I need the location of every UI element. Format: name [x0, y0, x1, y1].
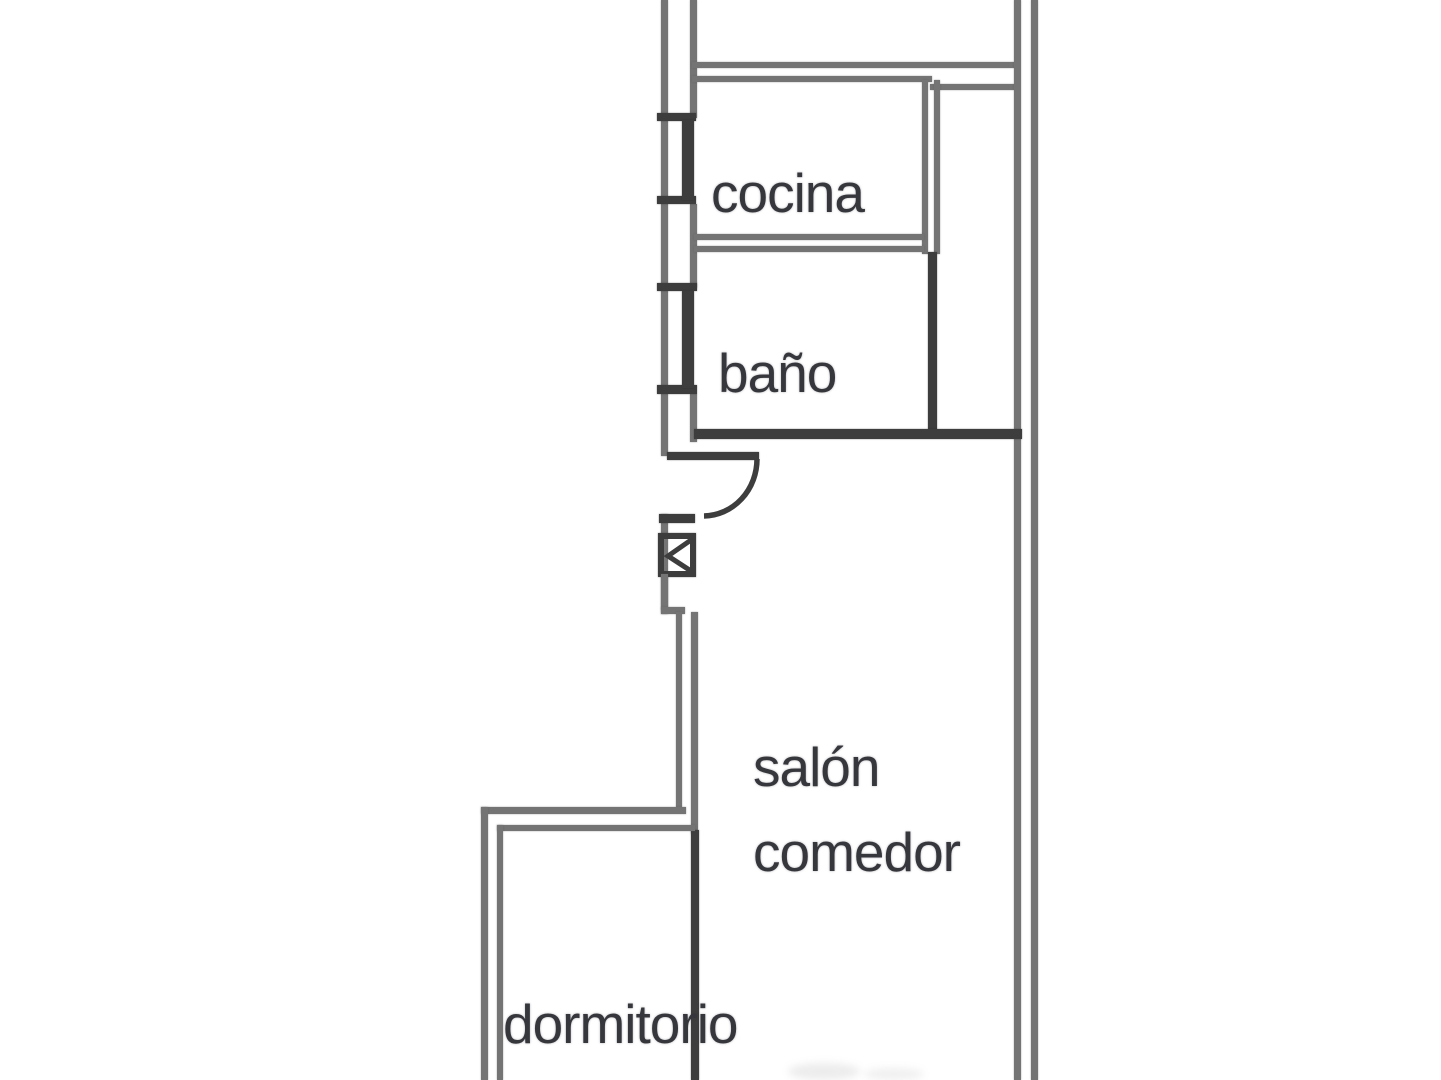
room-label-salon: salón	[753, 740, 879, 795]
wall-right-outer	[1031, 0, 1038, 1080]
wall-strip-top-line	[930, 84, 1016, 90]
shaft-box-icon	[658, 533, 696, 577]
wall-bano-right	[928, 252, 937, 434]
room-label-cocina: cocina	[711, 166, 864, 221]
room-label-dormitorio: dormitorio	[503, 997, 738, 1052]
wall-left-inner-top	[690, 0, 697, 118]
wall-dorm-top-inner	[497, 825, 695, 831]
wall-cocina-right-line2	[934, 80, 940, 254]
window-bano-icon-pane	[682, 291, 694, 388]
wall-dorm-top-outer	[481, 807, 686, 814]
wall-hall-left	[676, 612, 682, 809]
floor-plan: cocina baño salón comedor dormitorio	[0, 0, 1441, 1080]
wall-top-outer-line	[692, 62, 1018, 68]
wall-below-shaft	[661, 574, 668, 610]
wall-cocina-bano-line2	[694, 246, 924, 252]
window-bano-icon-top	[657, 283, 697, 291]
door-leaf	[667, 452, 759, 460]
wall-dorm-left-outer	[481, 807, 488, 1080]
wall-top-inner-line	[692, 76, 932, 82]
window-cocina-icon-pane	[682, 120, 694, 200]
bottom-edge-smudge	[864, 1068, 924, 1080]
room-label-comedor: comedor	[753, 825, 960, 880]
wall-salon-west-upper	[691, 612, 698, 834]
wall-cocina-right-line1	[922, 80, 928, 254]
room-label-bano: baño	[718, 346, 836, 401]
bottom-edge-smudge	[788, 1063, 860, 1080]
wall-bano-bottom	[694, 429, 1022, 439]
door-landing	[659, 514, 695, 523]
wall-cocina-bano-line1	[694, 234, 924, 240]
wall-right-inner	[1014, 0, 1021, 1080]
